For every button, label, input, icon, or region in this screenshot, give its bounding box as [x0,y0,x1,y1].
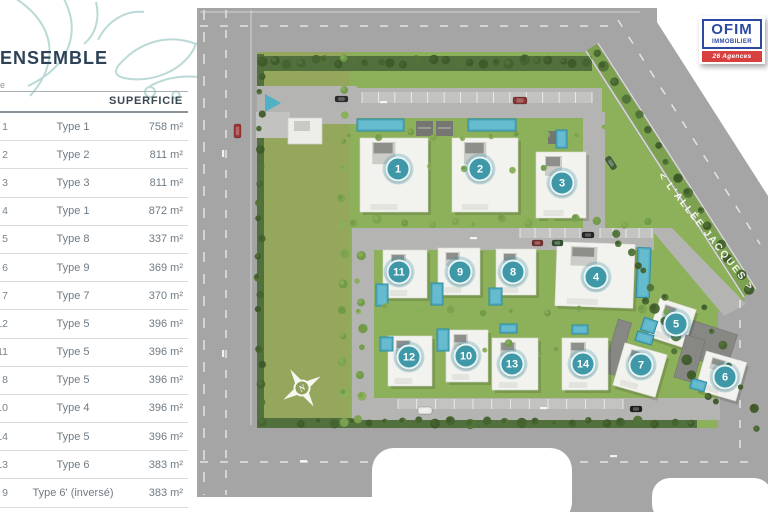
surface-table-panel: ENSEMBLE e SUPERFICIE 1Type 1758 m²2Type… [0,0,195,512]
villa-type-cell: Type 5 [8,346,138,358]
table-row: 1Type 1758 m² [0,113,188,141]
car [513,97,527,104]
villa-type-cell: Type 8 [8,233,138,245]
villa-area-cell: 383 m² [138,459,188,471]
villa-type-cell: Type 5 [8,318,138,330]
villa-area-cell: 396 m² [138,431,188,443]
villa-badge-5: 5 [664,312,689,337]
villa-number-cell: 2 [0,149,8,161]
table-row: 4Type 1872 m² [0,198,188,226]
villa-badge-2: 2 [468,157,493,182]
villa-number-cell: 7 [0,290,8,302]
superficie-header: SUPERFICIE [0,95,183,107]
villa-number-cell: 4 [0,205,8,217]
table-row: 3Type 3811 m² [0,169,188,197]
villa-badge-9: 9 [448,260,473,285]
villa-area-cell: 370 m² [138,290,188,302]
villa-type-cell: Type 9 [8,262,138,274]
villa-type-cell: Type 1 [8,205,138,217]
villa-number-cell: 14 [0,431,8,443]
villa-number-cell: 8 [0,374,8,386]
villa-number-cell: 6 [0,262,8,274]
villa-area-cell: 396 m² [138,402,188,414]
table-row: 8Type 5396 m² [0,367,188,395]
table-row: 14Type 5396 m² [0,423,188,451]
table-row: 6Type 9369 m² [0,254,188,282]
villa-area-cell: 396 m² [138,318,188,330]
villa-area-cell: 337 m² [138,233,188,245]
page-title: ENSEMBLE [0,48,108,69]
villa-area-cell: 758 m² [138,121,188,133]
villa-area-cell: 396 m² [138,346,188,358]
villa-area-cell: 369 m² [138,262,188,274]
villa-badge-3: 3 [550,171,575,196]
ofim-logo-box: OFIM IMMOBILIER [702,19,762,49]
villa-type-cell: Type 5 [8,374,138,386]
table-row: 12Type 5396 m² [0,310,188,338]
villa-type-cell: Type 6' (inversé) [8,487,138,499]
road-cutout [652,478,768,512]
car [418,407,432,414]
villa-type-cell: Type 3 [8,177,138,189]
villa-number-cell: 1 [0,121,8,133]
car [552,240,563,246]
villa-type-cell: Type 5 [8,431,138,443]
surface-table: 1Type 1758 m²2Type 2811 m²3Type 3811 m²4… [0,113,188,508]
villa-type-cell: Type 1 [8,121,138,133]
villa-number-cell: 12 [0,318,8,330]
road-cutout [372,448,572,512]
villa-type-cell: Type 2 [8,149,138,161]
villa-type-cell: Type 6 [8,459,138,471]
ofim-logo: OFIM IMMOBILIER 26 Agences [699,16,765,64]
ofim-agences-banner: 26 Agences [702,51,762,62]
villa-type-cell: Type 7 [8,290,138,302]
table-row: 2Type 2811 m² [0,141,188,169]
villa-area-cell: 383 m² [138,487,188,499]
table-row: 13Type 6383 m² [0,451,188,479]
villa-badge-14: 14 [571,352,596,377]
villa-badge-6: 6 [713,365,738,390]
villa-area-cell: 872 m² [138,205,188,217]
car [582,232,594,238]
villa-badge-8: 8 [501,260,526,285]
cropped-note: e [0,80,5,90]
ofim-brand: OFIM [704,22,760,38]
villa-badge-7: 7 [629,353,654,378]
villa-badge-4: 4 [584,265,609,290]
table-row: 10Type 4396 m² [0,395,188,423]
site-plan-page: < L'ALLÉE JACQUES > N 123456789101112131… [0,0,768,512]
table-row: 11Type 5396 m² [0,339,188,367]
villa-area-cell: 811 m² [138,149,188,161]
car [630,406,642,412]
villa-number-cell: 3 [0,177,8,189]
villa-number-cell: 11 [0,346,8,358]
car [335,96,348,102]
car [532,240,543,246]
villa-number-cell: 5 [0,233,8,245]
table-row: 9Type 6' (inversé)383 m² [0,479,188,507]
villa-area-cell: 396 m² [138,374,188,386]
car [234,124,241,138]
villa-badge-10: 10 [454,344,479,369]
villa-badge-11: 11 [387,260,412,285]
villa-badge-12: 12 [397,345,422,370]
table-top-rule [0,91,188,92]
villa-number-cell: 9 [0,487,8,499]
villa-badge-1: 1 [386,157,411,182]
table-row: 7Type 7370 m² [0,282,188,310]
villa-number-cell: 13 [0,459,8,471]
villa-number-cell: 10 [0,402,8,414]
table-row: 5Type 8337 m² [0,226,188,254]
ofim-subtitle: IMMOBILIER [704,39,760,45]
villa-badge-13: 13 [500,352,525,377]
villa-area-cell: 811 m² [138,177,188,189]
villa-type-cell: Type 4 [8,402,138,414]
